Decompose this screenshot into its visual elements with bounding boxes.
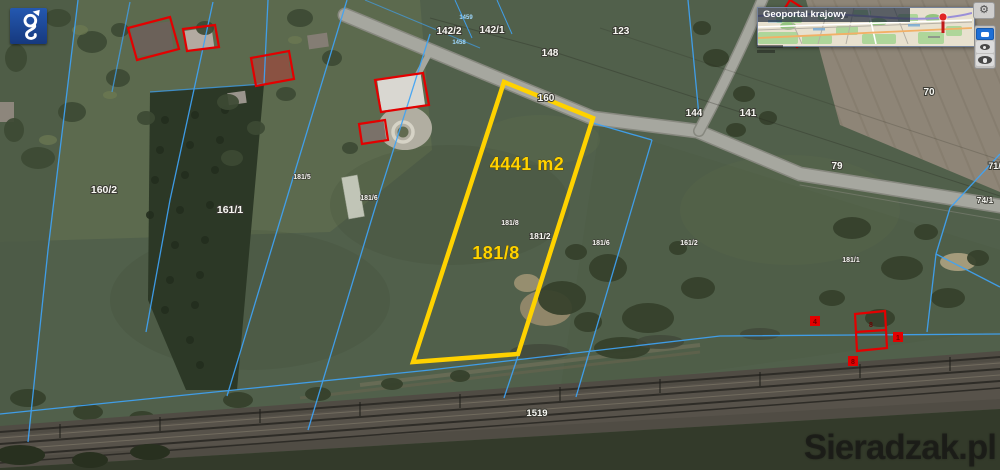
marker-digit: 8	[869, 322, 873, 329]
minimap-attribution	[757, 50, 775, 53]
marker-digit: 4	[813, 319, 817, 326]
cadastral-label: 181/5	[293, 174, 311, 181]
parcel-number-label: 181/8	[472, 243, 520, 263]
geoportal-map-view: 4441 m2 181/8 4 8 8 1 142/2	[0, 0, 1000, 470]
cadastral-label: 142/2	[436, 26, 461, 37]
geoportal-logo-button[interactable]	[10, 8, 47, 44]
marker-digit: 1	[896, 335, 900, 342]
cadastral-label: 74/1	[977, 195, 994, 205]
logo-g-icon	[12, 9, 46, 43]
parcel-area-label: 4441 m2	[490, 154, 565, 174]
current-extent-button[interactable]	[976, 28, 994, 40]
extent-icon	[981, 32, 989, 37]
cadastral-label: 79	[831, 161, 843, 172]
cadastral-label: 123	[613, 26, 630, 37]
visibility-large-button[interactable]	[976, 54, 994, 66]
aerial-map-canvas[interactable]: 4441 m2 181/8 4 8 8 1 142/2	[0, 0, 1000, 470]
site-watermark: Sieradzak.pl	[804, 428, 996, 468]
survey-point-label: 1459	[459, 15, 473, 21]
visibility-small-button[interactable]	[976, 41, 994, 53]
cadastral-label: 181/6	[360, 195, 378, 202]
eye-icon	[980, 44, 990, 50]
minimap-title: Geoportal krajowy	[758, 8, 910, 22]
cadastral-label: 181/1	[842, 257, 860, 264]
overview-minimap[interactable]: Geoportal krajowy	[757, 7, 975, 47]
cadastral-label: 181/8	[501, 220, 519, 227]
minimap-attribution	[757, 45, 783, 48]
cadastral-label: 1519	[526, 408, 547, 419]
cadastral-label: 148	[542, 48, 559, 59]
cadastral-label: 141	[740, 108, 757, 119]
map-settings-button[interactable]: ⚙	[973, 2, 995, 19]
cadastral-label: 144	[686, 108, 703, 119]
cadastral-label: 142/1	[479, 25, 504, 36]
marker-digit: 8	[851, 359, 855, 366]
cadastral-label: 70	[923, 87, 935, 98]
cadastral-label: 161/1	[217, 204, 243, 216]
cadastral-label: 181/6	[592, 240, 610, 247]
eye-icon	[978, 56, 992, 64]
cadastral-label: 181/2	[529, 231, 551, 241]
cadastral-label: 161/2	[680, 240, 698, 247]
minimap-controls	[974, 25, 996, 69]
gear-icon: ⚙	[979, 5, 989, 16]
cadastral-label: 160/2	[91, 184, 117, 196]
cadastral-label: 160	[538, 93, 555, 104]
cadastral-label: 71/1	[988, 161, 1000, 171]
survey-point-label: 1458	[452, 40, 466, 46]
